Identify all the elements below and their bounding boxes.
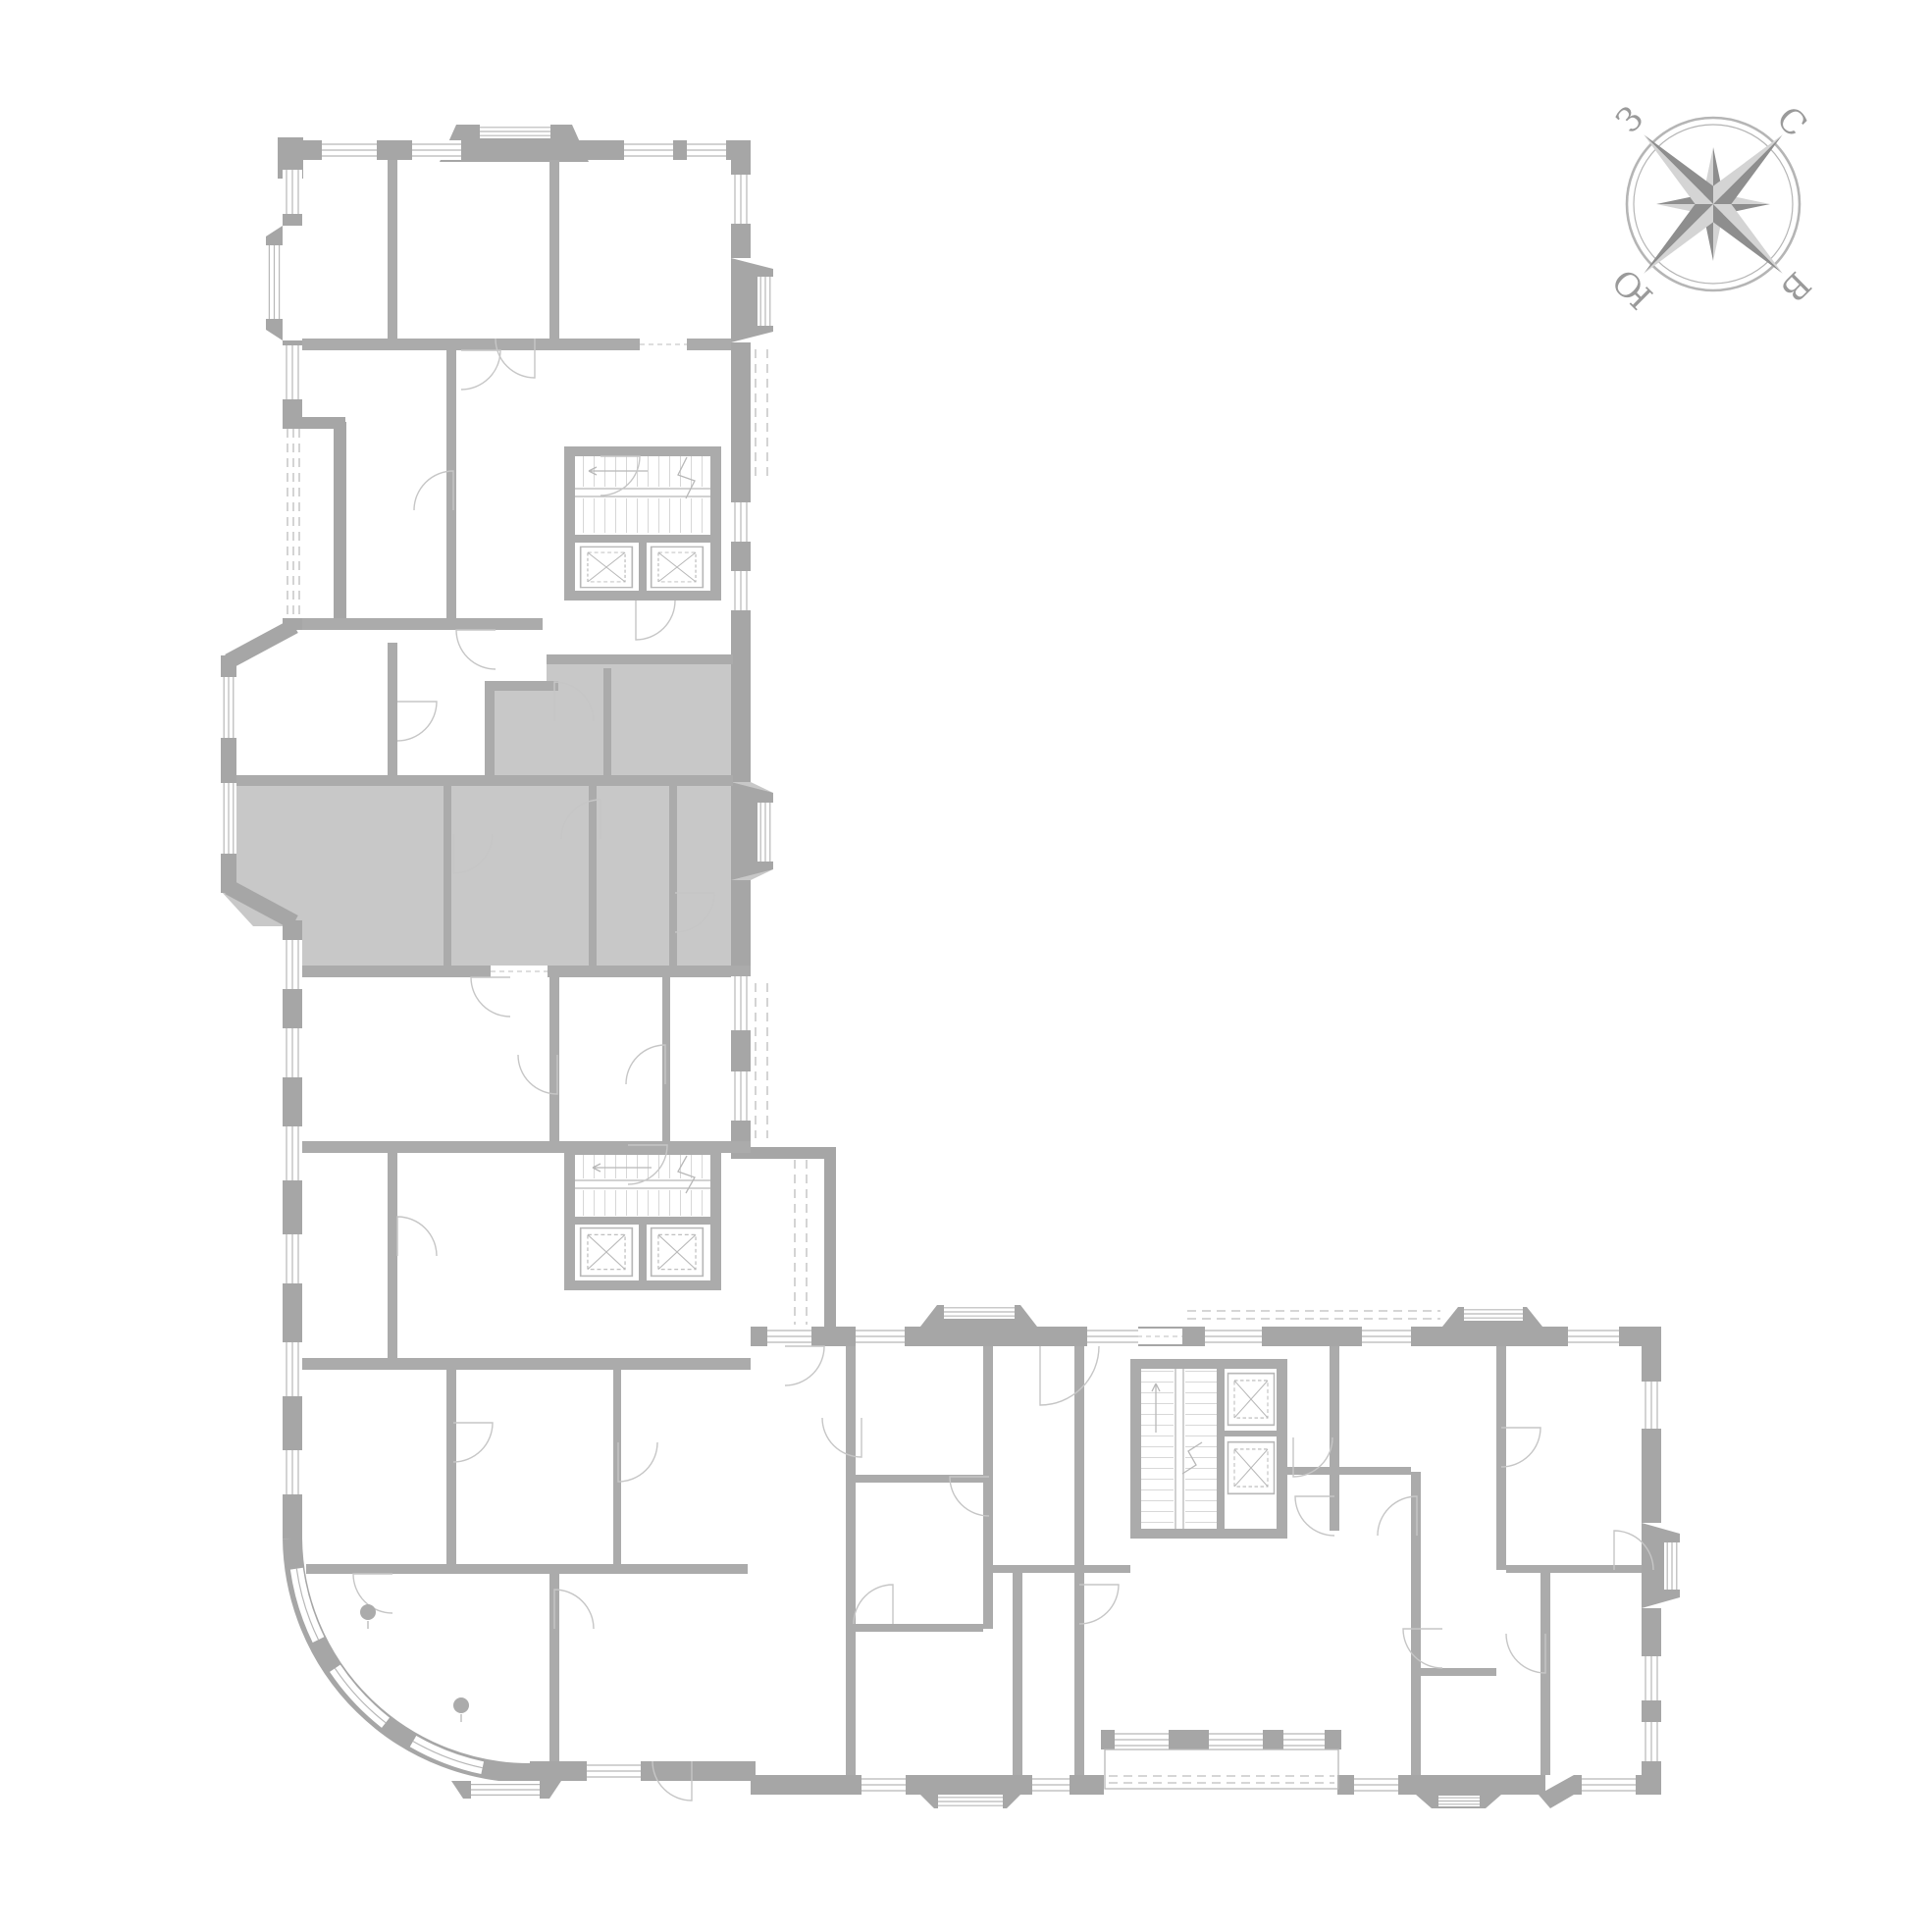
selected-apartment[interactable] [221, 664, 773, 966]
floorplan-page: С В Ю З [0, 0, 1932, 1932]
interior-walls [236, 160, 1642, 1775]
floor-plan-image: С В Ю З [0, 0, 1932, 1932]
staircase-lower [575, 1155, 710, 1216]
staircase-east [1141, 1369, 1217, 1529]
doors [353, 339, 1653, 1801]
compass-label-south: Ю [1605, 260, 1661, 316]
compass-label-west: З [1609, 99, 1651, 141]
staircase-upper [575, 456, 710, 533]
compass-label-north: С [1768, 99, 1814, 145]
compass-rose: С В Ю З [1605, 99, 1818, 317]
